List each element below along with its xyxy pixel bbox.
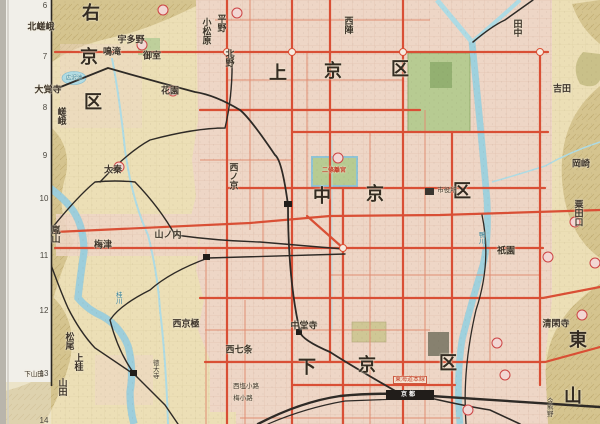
area-nishishiokoji: 西塩小路 xyxy=(233,383,259,390)
ward-nakagyo-2: 京 xyxy=(366,186,384,204)
area-daikakuji: 大覚寺 xyxy=(34,87,61,96)
grid-row-number: 14 xyxy=(40,417,49,424)
ward-shimogyo-1: 下 xyxy=(298,359,316,377)
ward-nakagyo-1: 中 xyxy=(313,188,331,206)
kyoto-city-map: 右京区上京区中京区下京区東山北嵯峨大覚寺嵯峨鳴滝宇多野御室花園平野小松原北野西陣… xyxy=(0,0,600,424)
grid-row-number: 12 xyxy=(40,307,49,315)
ward-kamigyo-3: 区 xyxy=(391,61,409,79)
area-komatsubara: 小松原 xyxy=(201,18,210,45)
grid-row-number: 6 xyxy=(43,2,47,10)
ward-shimogyo-2: 京 xyxy=(358,357,376,375)
area-nishinokyo: 西ノ京 xyxy=(228,163,237,190)
ward-kamigyo-2: 京 xyxy=(324,63,342,81)
area-gion: 祇園 xyxy=(497,248,515,257)
grid-row-number: 9 xyxy=(43,152,47,160)
ward-ukyo-3: 区 xyxy=(84,94,102,112)
area-utano: 宇多野 xyxy=(117,37,144,46)
area-yamada: 山田 xyxy=(57,378,66,396)
area-tokudaiji: 徳大寺 xyxy=(152,359,159,379)
water-hirosawa-pond: 広沢池 xyxy=(66,76,83,82)
area-umezu: 梅津 xyxy=(94,242,112,251)
area-yamanouchi: 山ノ内 xyxy=(154,232,181,241)
area-saga: 嵯峨 xyxy=(56,107,65,125)
water-kamo-river: 鴨川 xyxy=(478,232,485,245)
site-city-hall: 市役所 xyxy=(437,187,457,194)
area-arashiyama: 嵐山 xyxy=(50,225,59,243)
grid-row-number: 11 xyxy=(40,252,48,260)
grid-row-number: 7 xyxy=(43,53,47,61)
area-okazaki: 岡崎 xyxy=(572,161,590,170)
station-kyoto: 京都 xyxy=(401,392,417,398)
area-nishikyogoku: 西京極 xyxy=(172,321,199,330)
area-kamikatsura: 上桂 xyxy=(73,353,82,371)
area-imakumano: 今熊野 xyxy=(546,397,553,417)
area-chudoji: 中堂寺 xyxy=(290,323,317,332)
area-nishishichijo: 西七条 xyxy=(225,347,252,356)
ward-ukyo-2: 京 xyxy=(80,49,98,67)
area-matsuo: 松尾 xyxy=(64,332,73,350)
area-nishijin: 西陣 xyxy=(343,16,352,34)
grid-row-number: 13 xyxy=(40,370,49,378)
water-katsura-river: 桂川 xyxy=(115,292,122,305)
area-seikanji: 清閑寺 xyxy=(542,321,569,330)
site-nijo-palace: 二條離宮 xyxy=(322,168,346,174)
area-awataguchi: 粟田口 xyxy=(573,200,582,227)
grid-row-number: 8 xyxy=(43,104,47,112)
area-tanaka: 田中 xyxy=(512,19,521,37)
ward-shimogyo-3: 区 xyxy=(439,355,457,373)
area-hirano: 平野 xyxy=(216,14,225,32)
ward-ukyo-1: 右 xyxy=(82,5,100,23)
ward-higashiyama-1: 東 xyxy=(569,332,587,350)
area-uzumasa: 太秦 xyxy=(104,167,122,176)
area-kitasaga: 北嵯峨 xyxy=(27,24,54,33)
area-hanazono: 花園 xyxy=(161,88,179,97)
area-yoshida: 吉田 xyxy=(553,86,571,95)
map-labels-layer: 右京区上京区中京区下京区東山北嵯峨大覚寺嵯峨鳴滝宇多野御室花園平野小松原北野西陣… xyxy=(0,0,600,424)
grid-row-number: 10 xyxy=(40,195,49,203)
area-narutaki: 鳴滝 xyxy=(103,49,121,58)
area-kitano: 北野 xyxy=(224,49,233,67)
rail-tokaido-line: 東海道本線 xyxy=(393,376,427,384)
area-omuro: 御室 xyxy=(143,53,161,62)
ward-kamigyo-1: 上 xyxy=(269,65,287,83)
ward-higashiyama-2: 山 xyxy=(564,388,582,406)
area-umekoji: 梅小路 xyxy=(233,395,253,402)
